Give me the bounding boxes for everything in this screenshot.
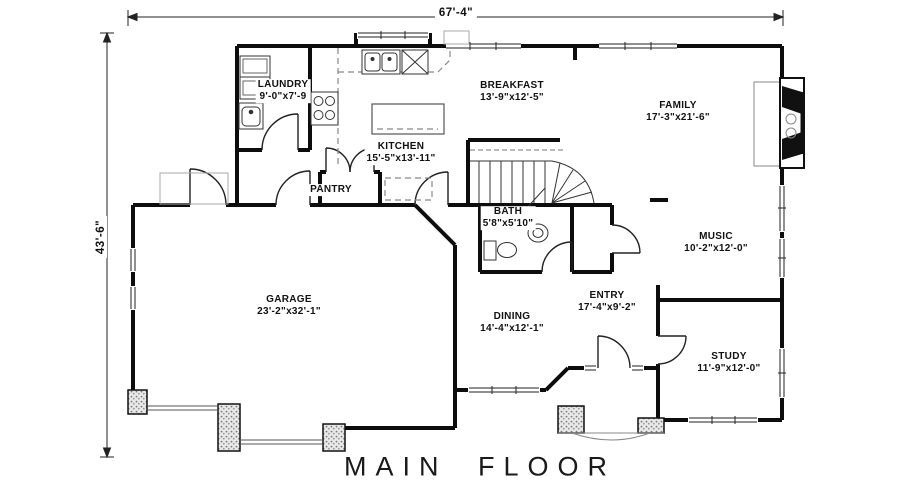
room-name: FAMILY	[646, 100, 710, 112]
room-size: 15'-5"x13'-11"	[366, 153, 435, 165]
room-size: 5'8"x5'10"	[483, 218, 534, 230]
room-size: 10'-2"x12'-0"	[684, 243, 748, 255]
room-name: DINING	[480, 311, 544, 323]
doors	[190, 114, 686, 368]
room-size: 9'-0"x7'-9	[258, 91, 309, 103]
room-label-music: MUSIC 10'-2"x12'-0"	[682, 231, 750, 255]
room-label-entry: ENTRY 17'-4"x9'-2"	[576, 290, 638, 314]
floor-plan-page: 67'-4" 43'-6" LAUNDRY 9'-0"x7'-9 KITCHEN…	[0, 0, 900, 500]
garage-pier	[128, 390, 147, 414]
garage-pier	[323, 424, 345, 451]
room-name: ENTRY	[578, 290, 636, 302]
room-label-dining: DINING 14'-4"x12'-1"	[478, 311, 546, 335]
windows	[129, 31, 786, 424]
room-name: LAUNDRY	[258, 79, 309, 91]
stairs	[470, 150, 594, 211]
room-size: 14'-4"x12'-1"	[480, 323, 544, 335]
toilet	[484, 241, 496, 260]
porch-pier	[638, 418, 664, 433]
room-label-family: FAMILY 17'-3"x21'-6"	[644, 100, 712, 124]
room-size: 23'-2"x32'-1"	[257, 306, 321, 318]
room-label-garage: GARAGE 23'-2"x32'-1"	[255, 294, 323, 318]
room-label-kitchen: KITCHEN 15'-5"x13'-11"	[364, 141, 437, 165]
room-name: BATH	[483, 206, 534, 218]
room-name: STUDY	[697, 351, 760, 363]
cooktop	[311, 92, 338, 125]
room-label-breakfast: BREAKFAST 13'-9"x12'-5"	[478, 80, 546, 104]
room-size: 13'-9"x12'-5"	[480, 92, 544, 104]
side-stoop	[160, 173, 228, 204]
room-name: MUSIC	[684, 231, 748, 243]
room-label-bath: BATH 5'8"x5'10"	[481, 206, 536, 230]
overall-width-dimension: 67'-4"	[435, 7, 477, 19]
room-size: 17'-3"x21'-6"	[646, 112, 710, 124]
room-label-laundry: LAUNDRY 9'-0"x7'-9	[256, 79, 311, 103]
room-size: 17'-4"x9'-2"	[578, 302, 636, 314]
room-name: GARAGE	[257, 294, 321, 306]
room-label-pantry: PANTRY	[308, 184, 354, 196]
room-name: PANTRY	[310, 184, 352, 196]
porch-edge	[558, 433, 664, 440]
garage-pier	[218, 404, 240, 451]
overall-height-dimension: 43'-6"	[95, 216, 107, 258]
fireplace	[754, 78, 804, 168]
plan-title: MAIN FLOOR	[344, 452, 616, 483]
room-label-study: STUDY 11'-9"x12'-0"	[695, 351, 762, 375]
room-size: 11'-9"x12'-0"	[697, 363, 760, 375]
floor-plan-drawing	[0, 0, 900, 500]
room-name: KITCHEN	[366, 141, 435, 153]
room-name: BREAKFAST	[480, 80, 544, 92]
porch-pier	[558, 406, 584, 433]
